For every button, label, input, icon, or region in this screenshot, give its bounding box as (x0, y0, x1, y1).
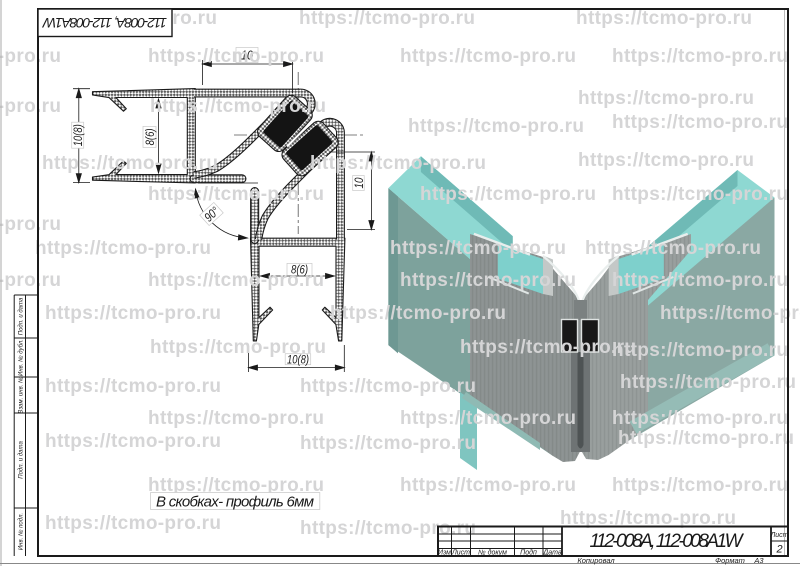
svg-text:Формат: Формат (715, 556, 745, 565)
svg-text:https://tcmo-pro.ru: https://tcmo-pro.ru (612, 270, 788, 291)
svg-text:https://tcmo-pro.ru: https://tcmo-pro.ru (148, 46, 324, 67)
svg-text:https://tcmo-pro.ru: https://tcmo-pro.ru (408, 116, 584, 137)
svg-text:https://tcmo-pro.ru: https://tcmo-pro.ru (576, 8, 752, 29)
svg-text:https://tcmo-pro.ru: https://tcmo-pro.ru (612, 475, 788, 496)
svg-text:https://tcmo-pro.ru: https://tcmo-pro.ru (612, 46, 788, 67)
svg-text:https://tcmo-pro.ru: https://tcmo-pro.ru (45, 431, 221, 452)
svg-text:https://tcmo-pro.ru: https://tcmo-pro.ru (45, 513, 221, 534)
svg-text:https://tcmo-pro.ru: https://tcmo-pro.ru (0, 270, 61, 291)
svg-text:https://tcmo-pro.ru: https://tcmo-pro.ru (660, 303, 800, 324)
svg-text:https://tcmo-pro.ru: https://tcmo-pro.ru (578, 150, 754, 171)
svg-text:https://tcmo-pro.ru: https://tcmo-pro.ru (45, 376, 221, 397)
svg-text:В скобках- профиль 6мм: В скобках- профиль 6мм (156, 494, 314, 511)
svg-text:https://tcmo-pro.ru: https://tcmo-pro.ru (300, 518, 476, 539)
svg-text:Подп: Подп (520, 549, 537, 557)
svg-text:https://tcmo-pro.ru: https://tcmo-pro.ru (400, 46, 576, 67)
svg-text:https://tcmo-pro.ru: https://tcmo-pro.ru (460, 337, 636, 358)
svg-text:https://tcmo-pro.ru: https://tcmo-pro.ru (0, 96, 61, 117)
svg-text:https://tcmo-pro.ru: https://tcmo-pro.ru (330, 303, 506, 324)
svg-text:https://tcmo-pro.ru: https://tcmo-pro.ru (612, 112, 788, 133)
svg-text:https://tcmo-pro.ru: https://tcmo-pro.ru (420, 184, 596, 205)
svg-text:А3: А3 (753, 556, 764, 565)
svg-text:Изм: Изм (438, 550, 451, 557)
svg-text:112-008А, 112-008А1W: 112-008А, 112-008А1W (41, 15, 167, 31)
svg-text:№ докум: № докум (478, 549, 507, 557)
svg-text:https://tcmo-pro.ru: https://tcmo-pro.ru (35, 238, 211, 259)
svg-text:https://tcmo-pro.ru: https://tcmo-pro.ru (612, 340, 788, 361)
svg-text:https://tcmo-pro.ru: https://tcmo-pro.ru (612, 184, 788, 205)
svg-text:https://tcmo-pro.ru: https://tcmo-pro.ru (585, 238, 761, 259)
svg-text:https://tcmo-pro.ru: https://tcmo-pro.ru (42, 153, 218, 174)
svg-text:https://tcmo-pro.ru: https://tcmo-pro.ru (148, 184, 324, 205)
svg-text:https://tcmo-pro.ru: https://tcmo-pro.ru (300, 433, 476, 454)
svg-text:https://tcmo-pro.ru: https://tcmo-pro.ru (390, 238, 566, 259)
svg-text:Лист: Лист (451, 550, 470, 557)
svg-text:Дата: Дата (542, 550, 562, 557)
svg-text:Инв. № подл.: Инв. № подл. (18, 513, 25, 550)
svg-text:https://tcmo-pro.ru: https://tcmo-pro.ru (310, 153, 486, 174)
svg-text:10(8): 10(8) (71, 124, 85, 146)
svg-text:https://tcmo-pro.ru: https://tcmo-pro.ru (578, 88, 754, 109)
svg-text:https://tcmo-pro.ru: https://tcmo-pro.ru (618, 428, 794, 449)
svg-text:https://tcmo-pro.ru: https://tcmo-pro.ru (300, 376, 476, 397)
svg-text:https://tcmo-pro.ru: https://tcmo-pro.ru (45, 303, 221, 324)
svg-text:2: 2 (775, 544, 782, 556)
svg-text:10: 10 (352, 177, 366, 188)
svg-text:https://tcmo-pro.ru: https://tcmo-pro.ru (150, 96, 326, 117)
svg-text:https://tcmo-pro.ru: https://tcmo-pro.ru (612, 408, 788, 429)
svg-text:https://tcmo-pro.ru: https://tcmo-pro.ru (0, 214, 61, 235)
svg-text:8(6): 8(6) (143, 128, 157, 145)
svg-text:https://tcmo-pro.ru: https://tcmo-pro.ru (148, 270, 324, 291)
svg-text:https://tcmo-pro.ru: https://tcmo-pro.ru (299, 8, 475, 29)
svg-text:https://tcmo-pro.ru: https://tcmo-pro.ru (0, 46, 61, 67)
svg-text:https://tcmo-pro.ru: https://tcmo-pro.ru (400, 475, 576, 496)
svg-text:https://tcmo-pro.ru: https://tcmo-pro.ru (620, 372, 796, 393)
svg-text:https://tcmo-pro.ru: https://tcmo-pro.ru (400, 408, 576, 429)
svg-text:https://tcmo-pro.ru: https://tcmo-pro.ru (150, 337, 326, 358)
svg-text:https://tcmo-pro.ru: https://tcmo-pro.ru (400, 270, 576, 291)
svg-text:Подп. и дата: Подп. и дата (19, 297, 25, 335)
svg-text:Подп. и дата: Подп. и дата (19, 441, 25, 479)
svg-text:Лист: Лист (769, 532, 788, 539)
svg-text:https://tcmo-pro.ru: https://tcmo-pro.ru (148, 408, 324, 429)
svg-text:Взам. инв. №: Взам. инв. № (18, 376, 25, 414)
svg-text:112-008А, 112-008А1W: 112-008А, 112-008А1W (590, 531, 745, 552)
svg-text:Копировал: Копировал (577, 556, 615, 565)
svg-text:Инв. № дубл.: Инв. № дубл. (18, 339, 25, 376)
